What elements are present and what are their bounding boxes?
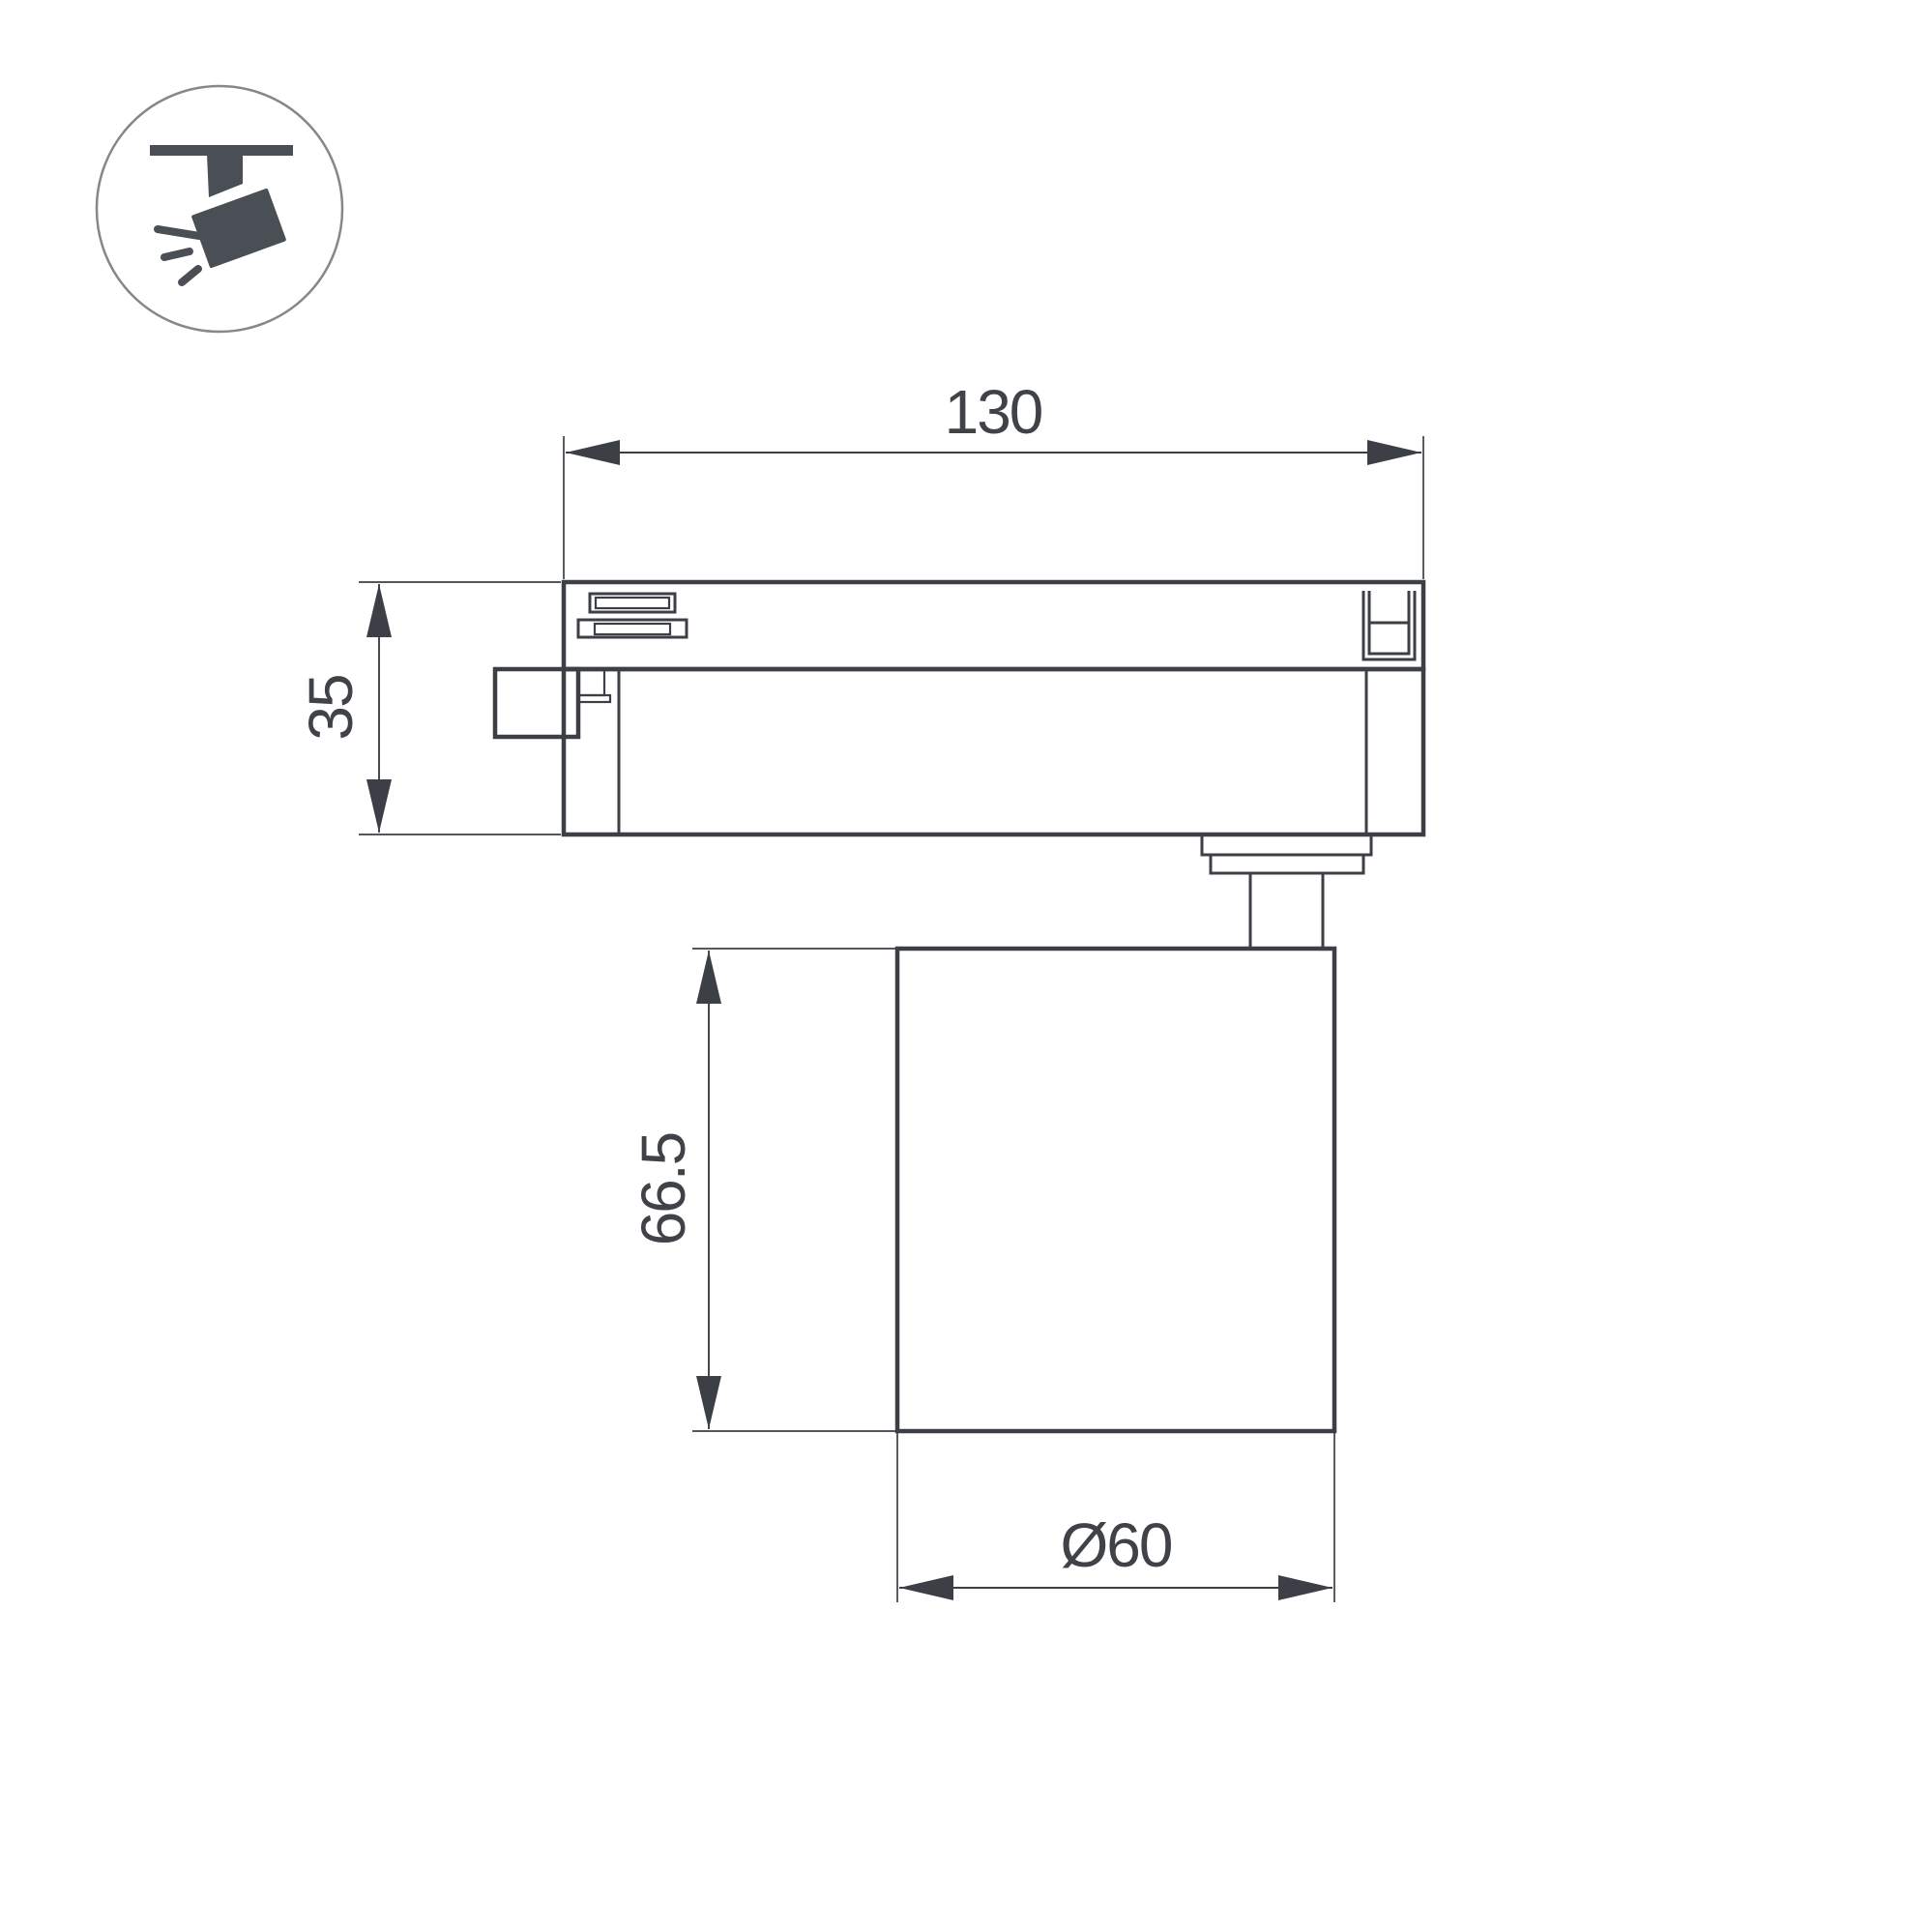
pivot-step-lower — [1211, 855, 1363, 873]
technical-drawing-canvas: 130 35 66.5 — [0, 0, 1932, 1932]
dim-body-height-label: 66.5 — [629, 1133, 698, 1246]
arrowhead-up-icon — [366, 584, 392, 637]
latch-bracket-outer — [1363, 591, 1415, 659]
dimension-track-height: 35 — [296, 582, 561, 834]
track-adapter-body — [564, 669, 1423, 834]
dimension-annotations: 130 35 66.5 — [296, 377, 1423, 1602]
dim-body-diameter-label: Ø60 — [1061, 1510, 1172, 1580]
swivel-stem — [1250, 873, 1323, 949]
arrowhead-left-icon — [566, 440, 620, 465]
arrowhead-down-icon — [366, 779, 392, 833]
arrowhead-down-icon — [696, 1376, 721, 1429]
track-bar-glyph — [150, 145, 293, 156]
contact-clip-lower-inner — [595, 624, 670, 634]
track-adapter-top-plate — [564, 582, 1423, 669]
pivot-step-upper — [1202, 834, 1371, 855]
arrowhead-left-icon — [899, 1575, 953, 1600]
dimension-body-diameter: Ø60 — [897, 1433, 1334, 1602]
knob-notch — [578, 669, 604, 695]
luminaire-drawing — [495, 582, 1423, 1431]
lamp-cylinder-body — [897, 949, 1334, 1431]
dimension-body-height: 66.5 — [629, 949, 895, 1431]
dim-track-height-label: 35 — [296, 675, 366, 740]
dim-track-width-label: 130 — [945, 377, 1042, 447]
contact-clip-upper-outer — [590, 594, 675, 612]
product-type-icon — [97, 86, 342, 332]
arrowhead-up-icon — [696, 951, 721, 1004]
dimension-track-width: 130 — [564, 377, 1423, 579]
arrowhead-right-icon — [1278, 1575, 1332, 1600]
knob-notch-lip — [578, 695, 610, 702]
contact-clip-upper-inner — [596, 598, 669, 608]
arrowhead-right-icon — [1367, 440, 1421, 465]
